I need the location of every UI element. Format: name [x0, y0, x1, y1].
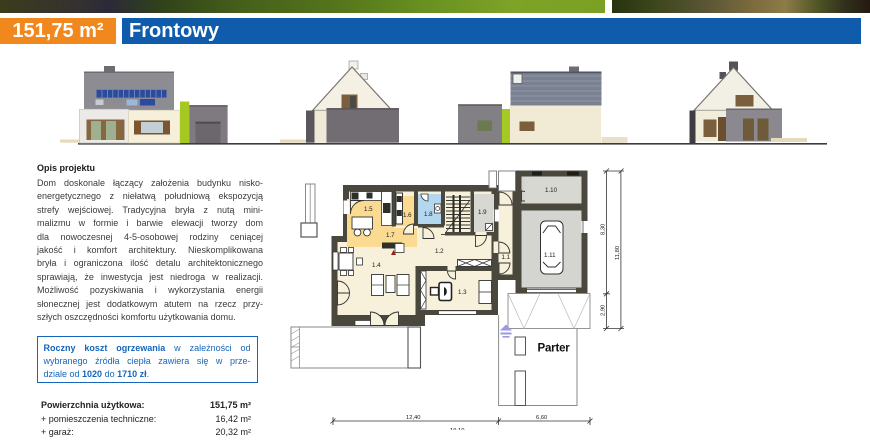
- svg-text:11,80: 11,80: [615, 246, 621, 260]
- svg-text:1.3: 1.3: [458, 289, 467, 296]
- svg-text:1.10: 1.10: [545, 187, 558, 194]
- svg-text:8,30: 8,30: [601, 224, 607, 235]
- svg-text:1.6: 1.6: [403, 212, 412, 219]
- svg-text:1.4: 1.4: [372, 262, 381, 269]
- svg-text:1.5: 1.5: [364, 206, 373, 213]
- svg-text:1.11: 1.11: [544, 252, 556, 259]
- svg-text:6,60: 6,60: [536, 415, 547, 421]
- svg-text:1.1: 1.1: [502, 254, 511, 261]
- svg-text:2,90: 2,90: [601, 305, 607, 316]
- svg-text:1.9: 1.9: [478, 209, 487, 216]
- svg-text:12,40: 12,40: [406, 415, 421, 421]
- svg-text:1.7: 1.7: [386, 232, 395, 239]
- svg-text:Parter: Parter: [538, 343, 571, 355]
- svg-text:1.2: 1.2: [435, 248, 444, 255]
- svg-text:1.8: 1.8: [424, 211, 433, 218]
